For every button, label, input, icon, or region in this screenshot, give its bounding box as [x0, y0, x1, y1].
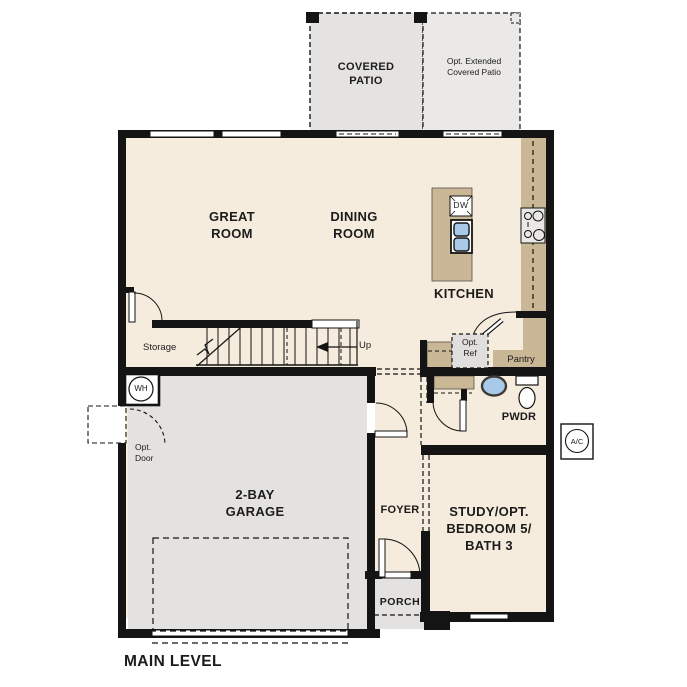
dishwasher-label: DW [453, 200, 468, 211]
toilet-bowl [519, 388, 535, 409]
sink-bowl [454, 223, 469, 236]
floor-plan-drawing [0, 0, 687, 687]
covered-patio-label: COVERED PATIO [338, 60, 395, 89]
up-label: Up [359, 340, 371, 352]
stair-wall [152, 320, 312, 328]
opt-door-dashed-box [88, 406, 126, 443]
plan-title: MAIN LEVEL [124, 652, 222, 672]
front-door-leaf [379, 539, 385, 577]
great-room-label: GREAT ROOM [209, 209, 255, 243]
sink-bowl [454, 238, 469, 251]
great-room-window [222, 131, 281, 137]
foyer-label: FOYER [381, 503, 420, 517]
pantry-wall-stub [516, 311, 546, 318]
dining-room-label: DINING ROOM [330, 209, 377, 243]
garage-entry-door-leaf [375, 431, 407, 437]
floor-plan: COVERED PATIO Opt. Extended Covered Pati… [0, 0, 687, 687]
powder-door-leaf [460, 400, 466, 431]
study-window [470, 614, 508, 619]
cooktop [521, 208, 545, 243]
patio-corner-notch [511, 13, 520, 23]
powder-wall-stub [427, 376, 434, 403]
patio-post [306, 12, 319, 23]
storage-label: Storage [143, 342, 176, 354]
opt-door-label: Opt. Door [135, 442, 153, 463]
garage-door-opening [367, 403, 375, 433]
storage-door-leaf [129, 292, 135, 322]
stair-railing [312, 320, 359, 328]
foyer-south-wall-right [410, 571, 425, 579]
toilet-tank [516, 376, 538, 385]
powder-sink [482, 377, 506, 396]
porch-label: PORCH [380, 596, 420, 610]
kitchen-counter-stub [427, 342, 452, 368]
opt-ref-label: Opt. Ref [462, 337, 478, 358]
kitchen-label: KITCHEN [434, 286, 494, 303]
powder-vanity [434, 376, 474, 389]
garage-label: 2-BAY GARAGE [226, 487, 285, 521]
opt-extended-patio-label: Opt. Extended Covered Patio [447, 56, 501, 77]
pantry-counter-vertical [523, 318, 546, 352]
pantry-label: Pantry [507, 354, 534, 366]
study-north-wall [421, 445, 553, 455]
powder-door-jamb [461, 389, 467, 401]
powder-label: PWDR [502, 410, 536, 424]
study-label: STUDY/OPT. BEDROOM 5/ BATH 3 [446, 504, 531, 555]
great-room-window [150, 131, 214, 137]
patio-post [414, 12, 427, 23]
water-heater-label: WH [134, 384, 147, 394]
kitchen-wall-stub [420, 340, 427, 377]
ac-unit-label: A/C [571, 437, 584, 447]
